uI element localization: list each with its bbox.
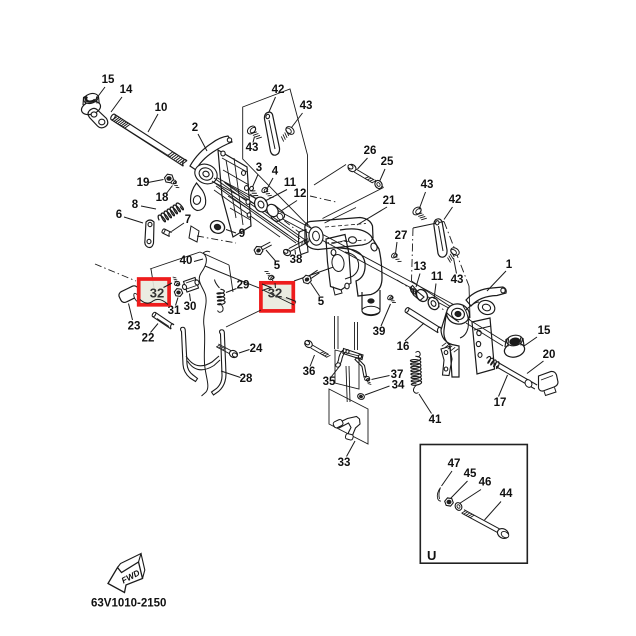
svg-text:13: 13 [414, 261, 427, 273]
svg-text:40: 40 [180, 255, 193, 267]
svg-text:29: 29 [237, 280, 250, 292]
svg-text:42: 42 [449, 194, 462, 206]
svg-text:22: 22 [142, 333, 155, 345]
svg-text:26: 26 [364, 145, 377, 157]
svg-text:42: 42 [272, 84, 285, 96]
svg-text:16: 16 [397, 341, 410, 353]
svg-text:63V1010-2150: 63V1010-2150 [91, 598, 166, 610]
svg-text:28: 28 [240, 373, 253, 385]
svg-text:17: 17 [494, 397, 507, 409]
svg-text:20: 20 [543, 349, 556, 361]
svg-text:9: 9 [239, 228, 245, 240]
svg-text:6: 6 [116, 209, 122, 221]
svg-text:44: 44 [500, 488, 513, 500]
svg-text:36: 36 [303, 366, 316, 378]
svg-text:2: 2 [192, 122, 198, 134]
svg-text:24: 24 [250, 343, 263, 355]
svg-text:19: 19 [137, 177, 150, 189]
svg-text:7: 7 [185, 214, 191, 226]
svg-text:1: 1 [506, 259, 513, 271]
svg-text:23: 23 [128, 321, 141, 333]
svg-text:5: 5 [274, 260, 281, 272]
svg-text:12: 12 [294, 188, 307, 200]
svg-text:47: 47 [448, 458, 461, 470]
svg-text:43: 43 [421, 179, 434, 191]
svg-text:38: 38 [290, 254, 303, 266]
svg-text:18: 18 [156, 192, 169, 204]
svg-text:32: 32 [150, 285, 164, 300]
svg-text:33: 33 [338, 457, 351, 469]
svg-text:43: 43 [246, 142, 259, 154]
svg-text:46: 46 [479, 477, 492, 489]
svg-text:10: 10 [155, 102, 168, 114]
svg-text:4: 4 [272, 166, 279, 178]
svg-text:32: 32 [268, 285, 282, 300]
svg-text:U: U [427, 548, 436, 563]
svg-text:5: 5 [318, 296, 325, 308]
svg-text:27: 27 [395, 230, 408, 242]
svg-text:3: 3 [256, 162, 262, 174]
svg-text:45: 45 [464, 468, 477, 480]
svg-text:21: 21 [383, 195, 396, 207]
svg-text:15: 15 [538, 325, 551, 337]
svg-text:30: 30 [184, 301, 197, 313]
svg-text:31: 31 [168, 305, 181, 317]
svg-text:39: 39 [373, 326, 386, 338]
svg-text:11: 11 [431, 271, 444, 283]
svg-text:14: 14 [120, 84, 133, 96]
svg-text:43: 43 [451, 274, 464, 286]
svg-text:8: 8 [132, 199, 139, 211]
svg-text:25: 25 [381, 156, 394, 168]
svg-text:34: 34 [392, 380, 405, 392]
svg-text:41: 41 [429, 414, 442, 426]
svg-text:35: 35 [323, 376, 336, 388]
svg-text:15: 15 [102, 74, 115, 86]
svg-text:43: 43 [300, 100, 313, 112]
